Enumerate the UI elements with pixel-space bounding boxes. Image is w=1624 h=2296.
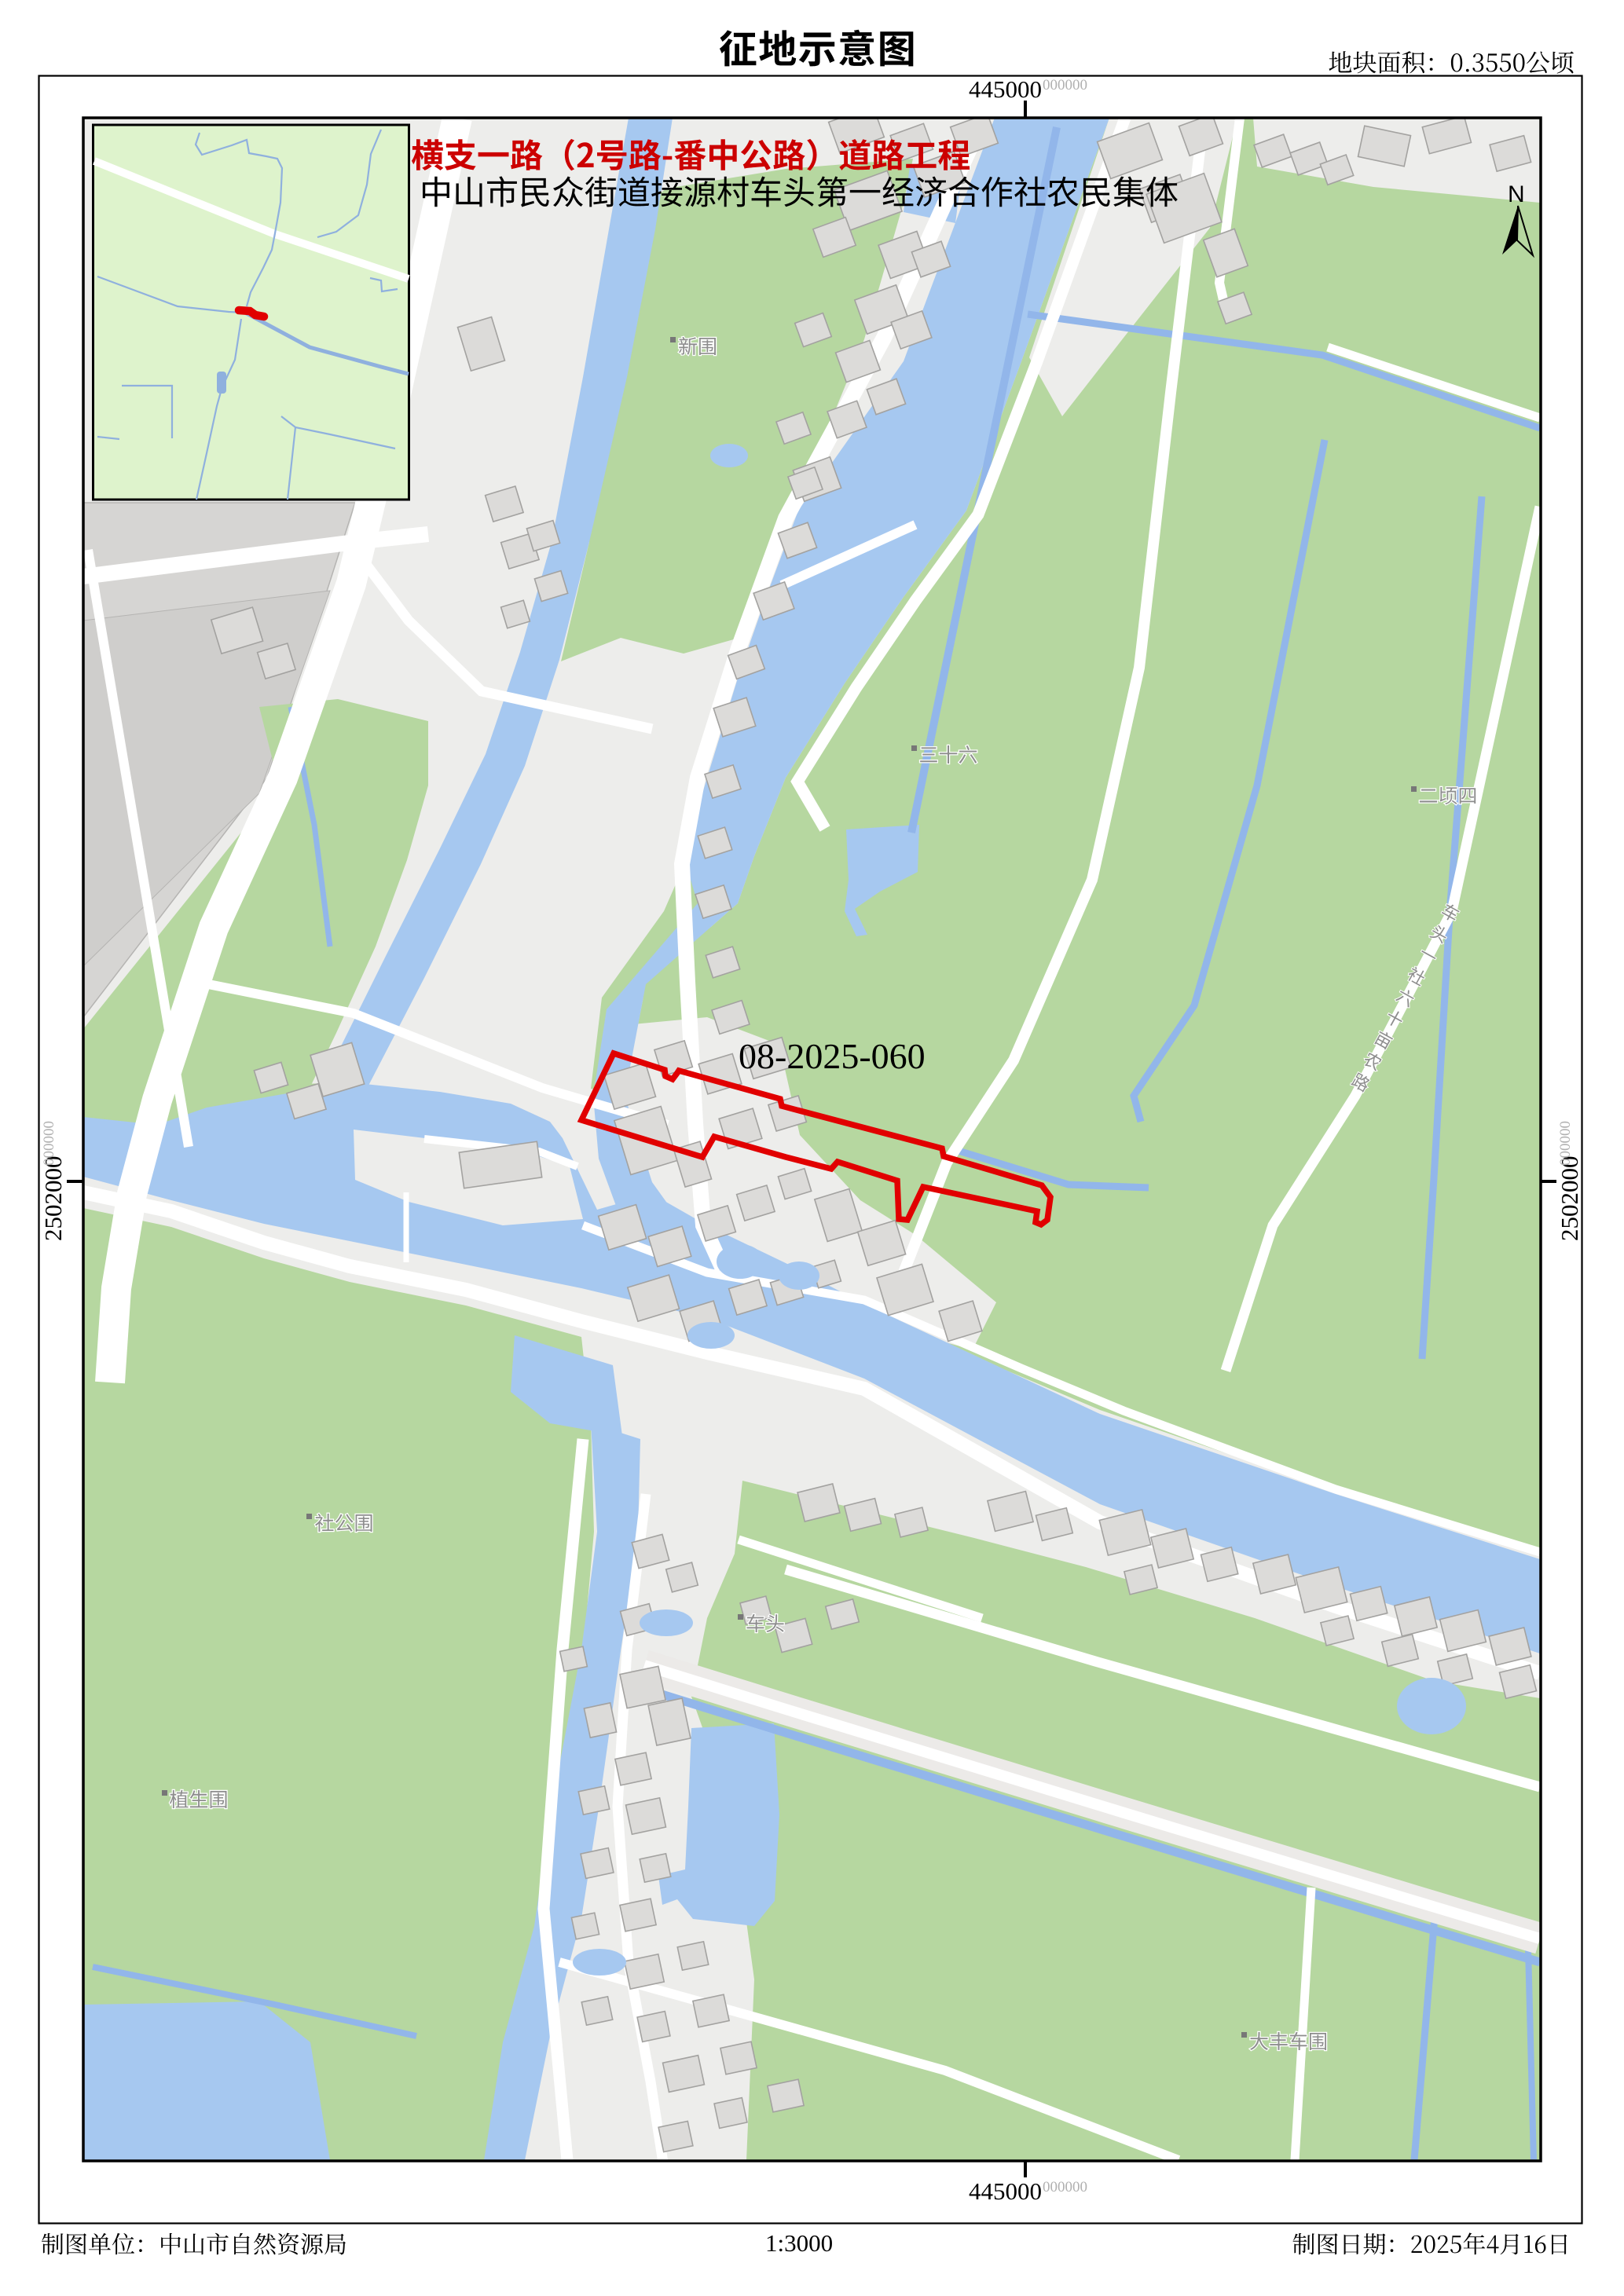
- svg-text:000000: 000000: [1557, 1121, 1574, 1166]
- svg-text:000000: 000000: [1043, 2179, 1087, 2195]
- svg-text:000000: 000000: [1043, 77, 1087, 93]
- svg-text:445000: 445000: [969, 75, 1042, 103]
- svg-text:000000: 000000: [41, 1121, 57, 1166]
- svg-text:2502000: 2502000: [39, 1156, 67, 1242]
- svg-text:N: N: [1508, 181, 1525, 207]
- svg-text:1:3000: 1:3000: [765, 2229, 833, 2257]
- svg-text:445000: 445000: [969, 2177, 1042, 2205]
- svg-text:2502000: 2502000: [1556, 1156, 1583, 1242]
- svg-text:08-2025-060: 08-2025-060: [739, 1036, 926, 1076]
